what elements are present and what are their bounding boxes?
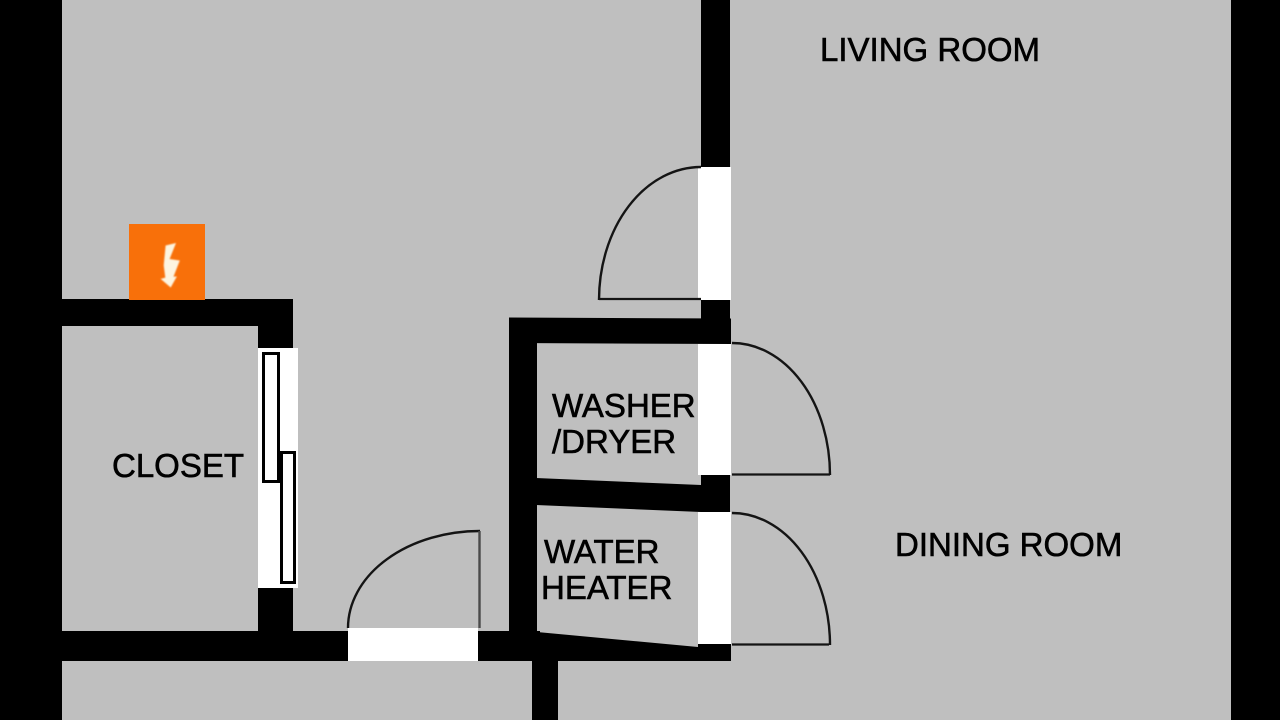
svg-text:/DRYER: /DRYER — [552, 423, 676, 460]
svg-text:LIVING ROOM: LIVING ROOM — [820, 31, 1040, 68]
svg-text:HEATER: HEATER — [541, 569, 672, 606]
svg-text:DINING ROOM: DINING ROOM — [895, 526, 1122, 563]
svg-text:CLOSET: CLOSET — [112, 447, 244, 484]
svg-text:WATER: WATER — [544, 533, 659, 570]
svg-text:WASHER: WASHER — [552, 387, 696, 424]
